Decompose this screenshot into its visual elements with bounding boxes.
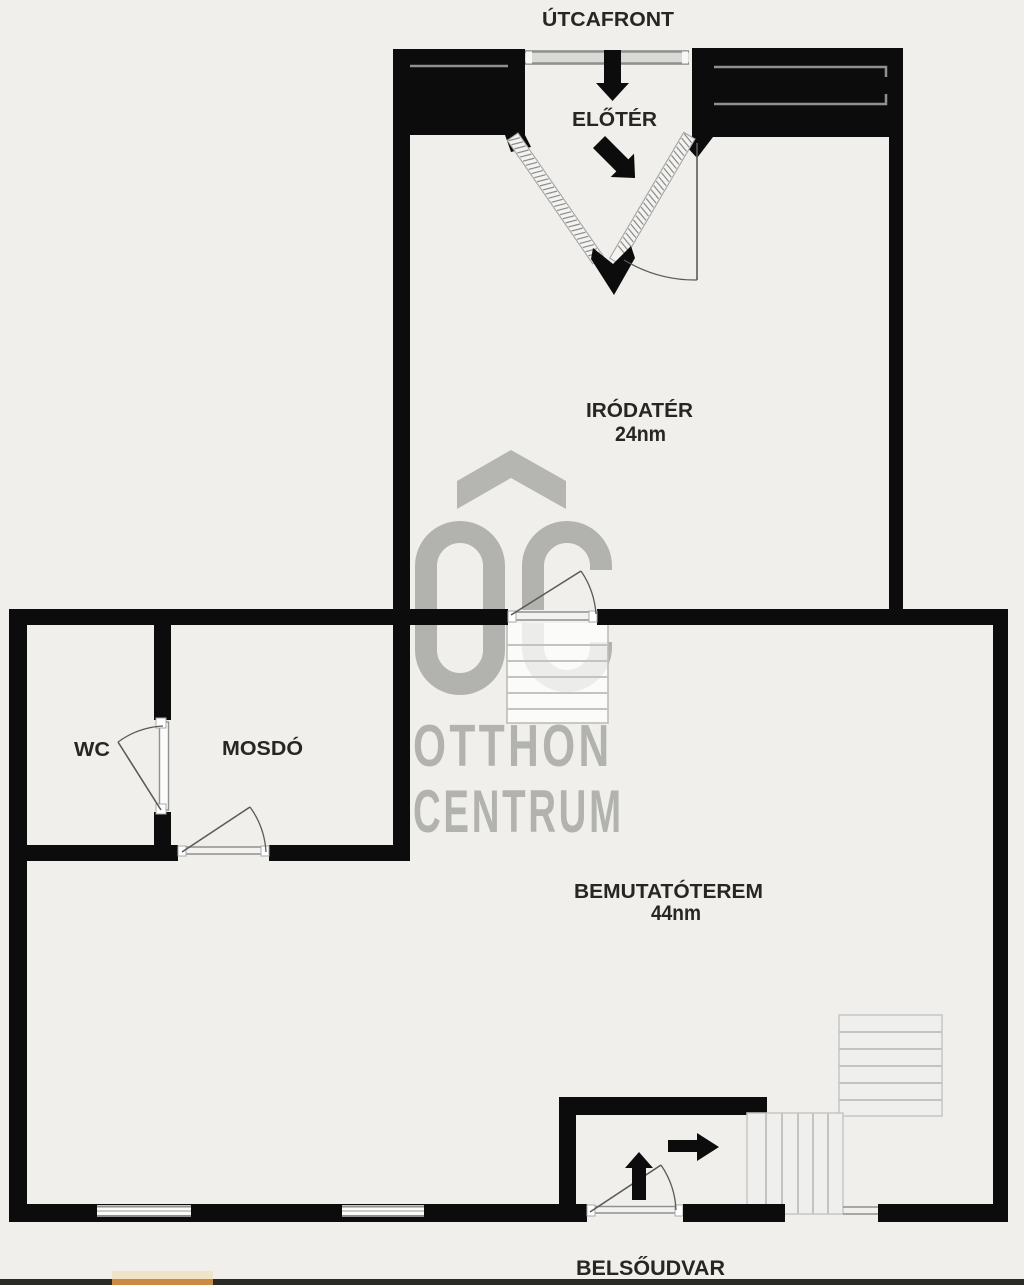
svg-text:24nm: 24nm [615, 422, 666, 446]
svg-text:ÚTCAFRONT: ÚTCAFRONT [542, 7, 674, 31]
svg-text:MOSDÓ: MOSDÓ [222, 736, 303, 760]
svg-text:CENTRUM: CENTRUM [413, 777, 624, 845]
svg-text:WC: WC [74, 739, 110, 761]
svg-text:IRÓDATÉR: IRÓDATÉR [586, 398, 694, 422]
svg-text:44nm: 44nm [651, 901, 701, 925]
svg-text:BELSŐUDVAR: BELSŐUDVAR [576, 1257, 725, 1280]
svg-text:BEMUTATÓTEREM: BEMUTATÓTEREM [574, 879, 763, 903]
svg-text:ELŐTÉR: ELŐTÉR [572, 108, 658, 131]
